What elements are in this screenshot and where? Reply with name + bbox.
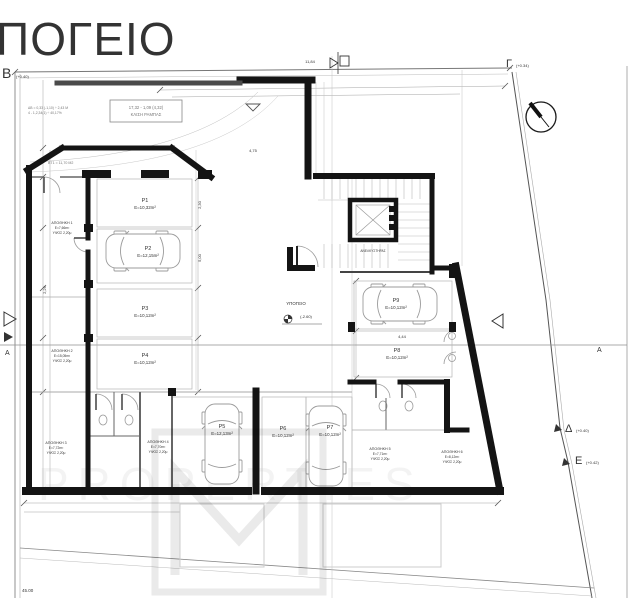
stair-core: ΑΝΕΛΚΥΣΤΗΡΑΣ	[318, 178, 432, 272]
car-icon-p2	[106, 231, 180, 271]
storage-3-name: ΑΠΟΘΗΚΗ 3	[45, 441, 66, 445]
boundary-markers: Β (+0.40) Γ (+0.34) Δ (+0.40) Ε (+0.42)	[2, 58, 599, 467]
marker-b-level: (+0.40)	[16, 74, 29, 79]
dim-top: 11,84	[305, 59, 315, 64]
slope-note-1: ΔΒ = 0,33 (-1,10) ÷ 2,43 Μ	[28, 106, 68, 110]
storage-3-area: Ε=7,72m²	[49, 446, 64, 450]
parking-label-p2: P2	[145, 246, 152, 252]
storage-2-name: ΑΠΟΘΗΚΗ 2	[51, 349, 72, 353]
marker-delta-level: (+0.40)	[576, 428, 589, 433]
ramp-direction-icon	[246, 104, 260, 111]
storage-3-height: ΥΨΟΣ 2,20μ	[47, 451, 66, 455]
parking-area-p2: Ε=12,15m²	[137, 253, 159, 258]
storage-2-area: Ε=15,05m²	[54, 354, 71, 358]
slope-note-2: 4 - 1,2,34(1) ÷ 40,17%	[28, 111, 62, 115]
marker-gamma-level: (+0.34)	[516, 63, 529, 68]
elevator-shaft	[350, 200, 396, 240]
storage-5-height: ΥΨΟΣ 2,20μ	[371, 457, 390, 461]
storage-1-name: ΑΠΟΘΗΚΗ 1	[51, 221, 72, 225]
section-arrow-left2-icon	[4, 332, 13, 342]
section-arrow-left-icon	[4, 312, 16, 326]
north-arrow-icon	[526, 102, 556, 132]
dim-p8-width: 4,44	[398, 334, 407, 339]
parking-area-p4: Ε=10,12m²	[134, 360, 156, 365]
marker-b-letter: Β	[2, 65, 11, 81]
parking-area-p3: Ε=10,12m²	[134, 313, 156, 318]
dim-bay-width: 2,30	[197, 200, 202, 209]
marker-gamma-letter: Γ	[506, 58, 512, 70]
ramp-note: 17,32 - 1,09 (4,32) ΚΛΙΣΗ ΡΑΜΠΑΣ	[110, 100, 260, 122]
section-letter-left: Α	[5, 350, 10, 357]
parking-label-p1: P1	[142, 198, 149, 204]
page-title: ΠΟΓΕΙΟ	[0, 13, 176, 65]
section-markers: Α Α	[4, 52, 602, 357]
dim-left-height: 2,29	[42, 285, 47, 294]
elevator-label: ΑΝΕΛΚΥΣΤΗΡΑΣ	[360, 249, 385, 253]
storage-6-name: ΑΠΟΘΗΚΗ 6	[441, 450, 462, 454]
car-icon-p5	[202, 404, 242, 484]
floor-plan-sheet: PROPERTIES	[0, 0, 640, 598]
dim-bay-depth: 5,00	[197, 253, 202, 262]
section-flag-top-icon	[330, 52, 349, 74]
storage-1-area: Ε=7,66m²	[55, 226, 70, 230]
parking-area-p1: Ε=10,32m²	[134, 205, 156, 210]
section-letter-right: Α	[597, 347, 602, 354]
section-arrow-right-icon	[492, 314, 503, 328]
dim-plot-bottom: 45.00	[22, 588, 34, 593]
ramp-note-line1: 17,32 - 1,09 (4,32)	[129, 105, 164, 110]
storage-5-name: ΑΠΟΘΗΚΗ 5	[369, 447, 390, 451]
parking-label-p7: P7	[327, 425, 334, 431]
floor-label: ΥΠΟΓΕΙΟ	[286, 301, 306, 306]
marker-epsilon-level: (+0.42)	[586, 460, 599, 465]
parking-label-p3: P3	[142, 306, 149, 312]
parking-area-p8: Ε=10,12m²	[386, 355, 408, 360]
marker-epsilon-letter: Ε	[575, 455, 582, 467]
dim-ramp: 4,75	[249, 148, 258, 153]
floor-level-note: ΥΠΟΓΕΙΟ (-2.60)	[282, 301, 322, 324]
floor-level-value: (-2.60)	[300, 314, 312, 319]
bt-note: ΒΤ1 = 11,70 Μ2	[48, 161, 73, 165]
storage-2-height: ΥΨΟΣ 2,20μ	[53, 359, 72, 363]
car-icon-p9	[363, 284, 437, 324]
storage-6-height: ΥΨΟΣ 2,20μ	[443, 460, 462, 464]
ramp-note-line2: ΚΛΙΣΗ ΡΑΜΠΑΣ	[131, 112, 162, 117]
storage-5-area: Ε=7,71m²	[373, 452, 388, 456]
storage-6-area: Ε=8,12m²	[445, 455, 460, 459]
parking-label-p4: P4	[142, 353, 149, 359]
storage-1-height: ΥΨΟΣ 2,20μ	[53, 231, 72, 235]
parking-label-p9: P9	[393, 298, 400, 304]
parking-label-p8: P8	[394, 348, 401, 354]
marker-delta-letter: Δ	[565, 423, 573, 435]
parking-area-p9: Ε=10,12m²	[385, 305, 407, 310]
